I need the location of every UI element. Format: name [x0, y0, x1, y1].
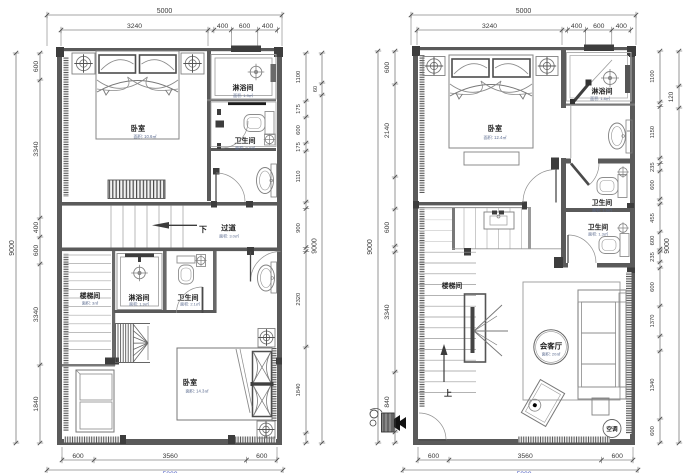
svg-text:楼梯间: 楼梯间 [80, 291, 101, 300]
svg-text:3340: 3340 [384, 304, 391, 319]
svg-text:淋浴间: 淋浴间 [233, 83, 254, 92]
svg-text:面积: 20㎡: 面积: 20㎡ [542, 351, 561, 357]
svg-text:5000: 5000 [157, 8, 173, 15]
svg-text:600: 600 [384, 222, 391, 234]
svg-text:400: 400 [262, 23, 274, 30]
svg-text:楼梯间: 楼梯间 [442, 281, 463, 290]
svg-text:900: 900 [296, 223, 302, 233]
svg-text:400: 400 [217, 23, 229, 30]
svg-text:175: 175 [296, 142, 302, 152]
svg-text:面积: 2.2㎡: 面积: 2.2㎡ [235, 145, 255, 151]
svg-text:1100: 1100 [650, 70, 656, 82]
svg-text:1840: 1840 [33, 396, 40, 411]
svg-text:1370: 1370 [650, 315, 656, 328]
svg-text:3340: 3340 [33, 141, 40, 156]
svg-text:9000: 9000 [664, 238, 671, 254]
svg-text:面积: 1.9㎡: 面积: 1.9㎡ [129, 301, 149, 307]
svg-text:600: 600 [239, 23, 251, 30]
svg-text:600: 600 [256, 453, 268, 460]
svg-text:面积: 10.6㎡: 面积: 10.6㎡ [133, 133, 157, 140]
svg-text:600: 600 [33, 245, 40, 257]
svg-text:600: 600 [650, 236, 656, 246]
svg-text:235: 235 [650, 252, 656, 262]
svg-text:9000: 9000 [367, 239, 374, 255]
svg-text:455: 455 [650, 213, 656, 223]
svg-text:1110: 1110 [296, 170, 302, 182]
svg-text:600: 600 [650, 180, 656, 190]
svg-text:400: 400 [571, 23, 583, 30]
svg-text:卫生间: 卫生间 [592, 198, 613, 207]
svg-text:过道: 过道 [221, 224, 236, 233]
svg-text:3560: 3560 [163, 453, 178, 460]
svg-text:面积: 14.3㎡: 面积: 14.3㎡ [185, 388, 209, 395]
svg-text:下: 下 [199, 225, 207, 234]
svg-text:2140: 2140 [384, 123, 391, 138]
svg-text:卧室: 卧室 [131, 124, 145, 133]
svg-text:5000: 5000 [516, 8, 532, 15]
svg-text:淋浴间: 淋浴间 [592, 87, 613, 96]
svg-text:3560: 3560 [518, 453, 533, 460]
svg-text:卫生间: 卫生间 [235, 136, 256, 145]
svg-text:3240: 3240 [127, 23, 142, 30]
svg-text:600: 600 [72, 453, 84, 460]
svg-text:面积: 1.6㎡: 面积: 1.6㎡ [592, 207, 612, 213]
svg-text:1150: 1150 [650, 126, 656, 138]
svg-text:卫生间: 卫生间 [588, 223, 609, 232]
svg-text:175: 175 [296, 104, 302, 114]
svg-text:1100: 1100 [296, 71, 302, 83]
svg-text:1840: 1840 [296, 384, 302, 397]
svg-text:9000: 9000 [312, 238, 319, 254]
svg-text:600: 600 [296, 125, 302, 135]
svg-text:600: 600 [650, 282, 656, 292]
svg-text:面积: 1.3㎡: 面积: 1.3㎡ [588, 231, 608, 237]
svg-text:1340: 1340 [650, 379, 656, 392]
svg-text:600: 600 [593, 23, 605, 30]
svg-text:会客厅: 会客厅 [540, 342, 563, 351]
svg-text:400: 400 [616, 23, 628, 30]
svg-text:600: 600 [384, 62, 391, 74]
svg-text:400: 400 [33, 222, 40, 234]
svg-text:面积: 1.9㎡: 面积: 1.9㎡ [233, 92, 253, 98]
svg-text:面积: 12.4㎡: 面积: 12.4㎡ [483, 134, 507, 141]
svg-text:面积: 1.8㎡: 面积: 1.8㎡ [590, 95, 610, 101]
svg-text:空调: 空调 [606, 425, 618, 433]
svg-text:235: 235 [650, 162, 656, 172]
svg-text:面积: 3.0㎡: 面积: 3.0㎡ [219, 233, 239, 239]
svg-text:面积: 2.1㎡: 面积: 2.1㎡ [180, 301, 200, 307]
svg-text:卧室: 卧室 [183, 378, 197, 387]
svg-text:3240: 3240 [482, 23, 497, 30]
svg-text:600: 600 [612, 453, 624, 460]
svg-text:600: 600 [428, 453, 440, 460]
svg-text:840: 840 [384, 396, 391, 408]
svg-text:3340: 3340 [33, 307, 40, 322]
svg-text:600: 600 [33, 61, 40, 73]
svg-text:卧室: 卧室 [488, 124, 502, 133]
svg-text:2320: 2320 [296, 293, 302, 306]
svg-text:面积: 3㎡: 面积: 3㎡ [82, 300, 98, 306]
svg-text:上: 上 [444, 388, 452, 398]
svg-text:120: 120 [668, 91, 675, 102]
svg-text:60: 60 [313, 86, 319, 92]
svg-text:600: 600 [650, 426, 656, 436]
svg-text:9000: 9000 [9, 240, 16, 256]
